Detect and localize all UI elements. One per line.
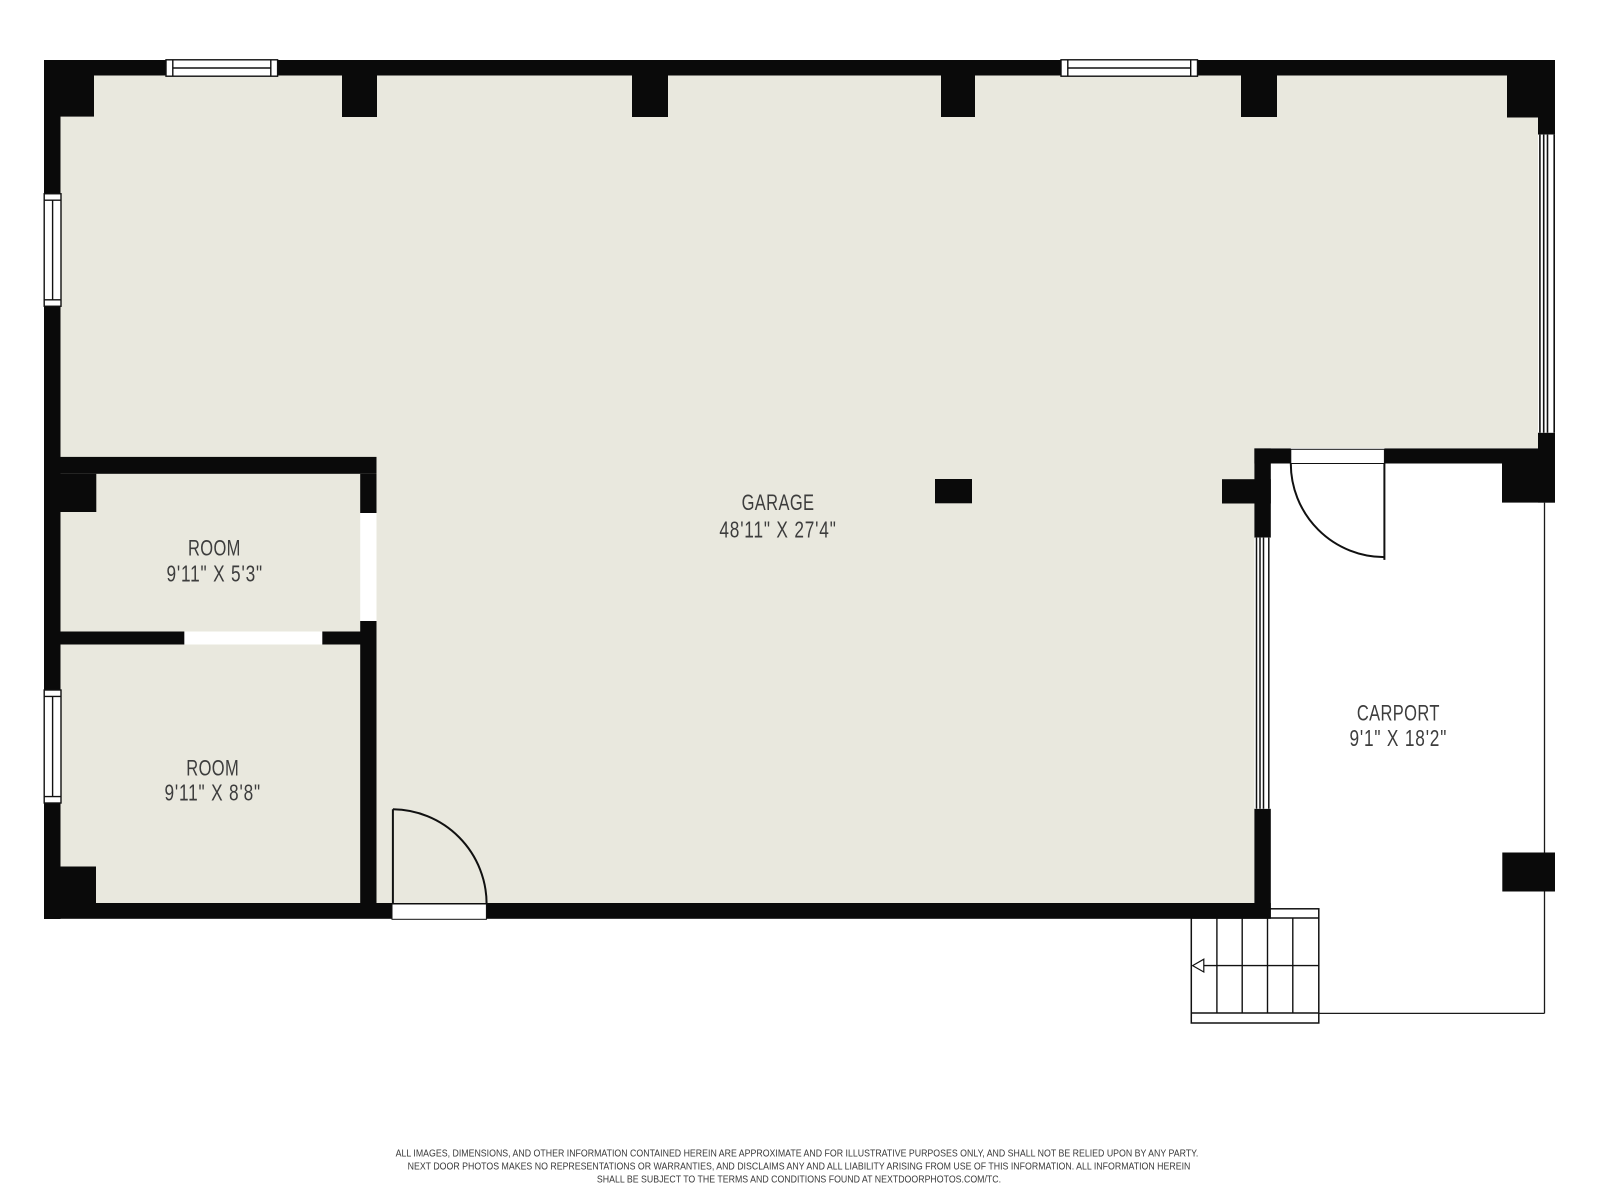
svg-text:SHALL BE SUBJECT TO THE TERMS: SHALL BE SUBJECT TO THE TERMS AND CONDIT… [597,1173,1001,1185]
svg-text:9'11" X 8'8": 9'11" X 8'8" [164,781,260,806]
svg-text:GARAGE: GARAGE [742,491,815,516]
svg-text:ROOM: ROOM [186,756,239,781]
svg-text:CARPORT: CARPORT [1357,701,1440,726]
svg-text:ROOM: ROOM [188,536,241,561]
svg-text:ALL IMAGES, DIMENSIONS, AND OT: ALL IMAGES, DIMENSIONS, AND OTHER INFORM… [396,1147,1199,1159]
svg-text:9'1" X 18'2": 9'1" X 18'2" [1349,727,1447,752]
svg-text:9'11" X 5'3": 9'11" X 5'3" [166,562,262,587]
svg-text:48'11" X 27'4": 48'11" X 27'4" [719,518,836,543]
svg-text:NEXT DOOR PHOTOS MAKES NO REPR: NEXT DOOR PHOTOS MAKES NO REPRESENTATION… [408,1160,1191,1172]
